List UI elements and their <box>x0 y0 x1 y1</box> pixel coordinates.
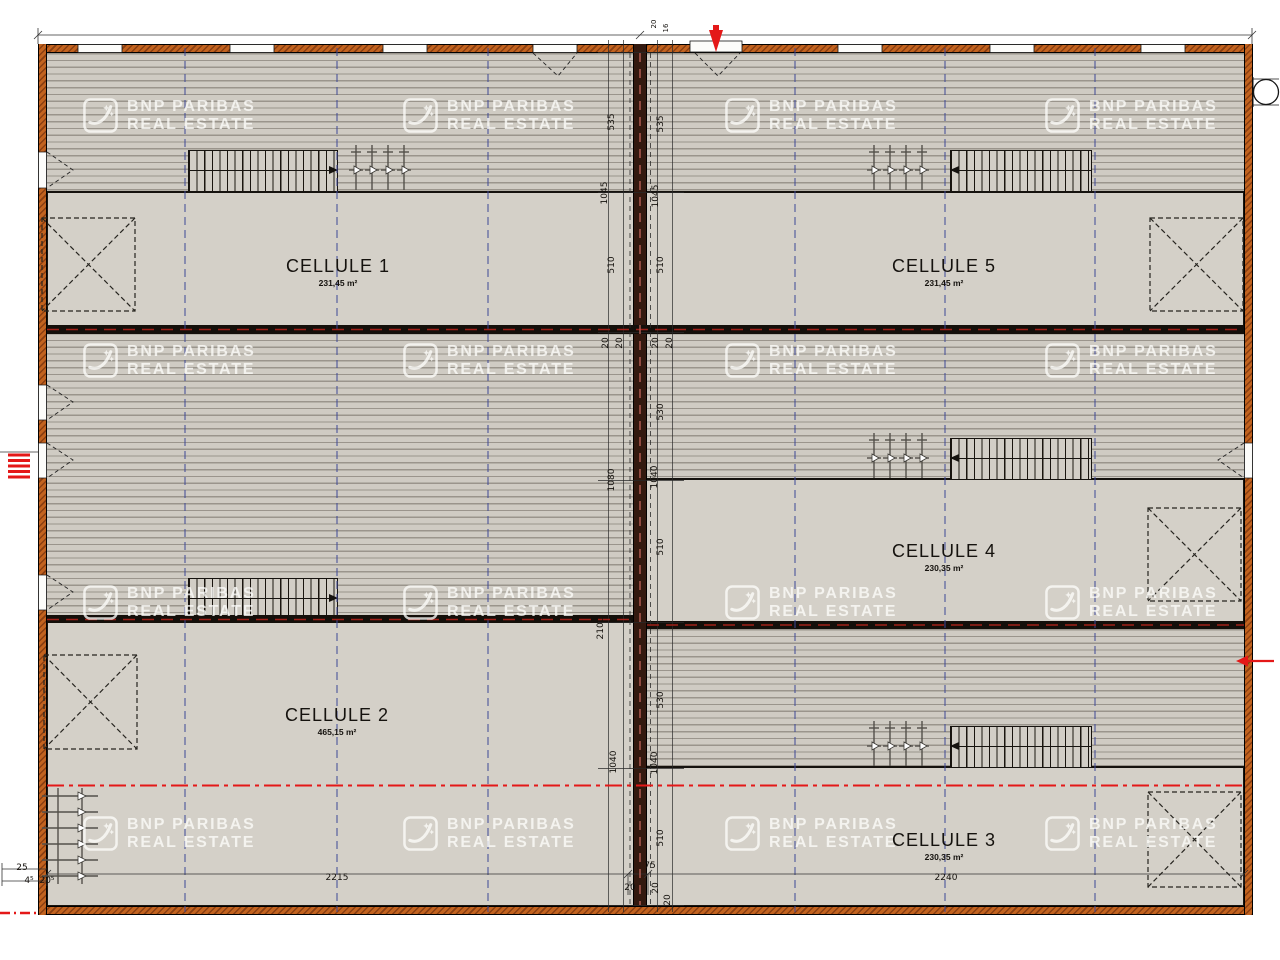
bnp-logo-icon <box>725 816 760 851</box>
dimension-text: 2215 <box>326 873 349 883</box>
firewall-lower-right <box>647 621 1244 629</box>
watermark: BNP PARIBASREAL ESTATE <box>403 98 576 133</box>
dimension-text: 4⁵ <box>24 876 33 886</box>
stair-direction-line <box>189 170 337 171</box>
watermark-line1: BNP PARIBAS <box>1089 343 1218 361</box>
room-name: CELLULE 2 <box>285 705 389 726</box>
bnp-logo-icon <box>403 98 438 133</box>
room-name: CELLULE 4 <box>892 541 996 562</box>
watermark: BNP PARIBASREAL ESTATE <box>1045 98 1218 133</box>
room-area: 465,15 m² <box>285 727 389 737</box>
room-label-cellule-4: CELLULE 4230,35 m² <box>892 541 996 573</box>
dimension-text: 535 <box>607 113 617 130</box>
room-name: CELLULE 3 <box>892 830 996 851</box>
dimension-text: 2240 <box>935 873 958 883</box>
bnp-logo-icon <box>83 585 118 620</box>
dimension-text: 1040 <box>650 466 660 489</box>
watermark: BNP PARIBASREAL ESTATE <box>403 343 576 378</box>
dimension-text: 20 <box>651 337 661 348</box>
watermark-line1: BNP PARIBAS <box>447 98 576 116</box>
dimension-text: 16 <box>662 24 670 33</box>
dimension-text: 510 <box>607 256 617 273</box>
watermark-line1: BNP PARIBAS <box>127 585 256 603</box>
watermark-line2: REAL ESTATE <box>1089 834 1218 852</box>
bnp-logo-icon <box>403 816 438 851</box>
bnp-logo-icon <box>403 585 438 620</box>
dimension-text: 20⁵ <box>39 876 54 886</box>
firewall-upper <box>47 325 1244 334</box>
watermark-line1: BNP PARIBAS <box>1089 98 1218 116</box>
stair-direction-line <box>951 458 1091 459</box>
watermark: BNP PARIBASREAL ESTATE <box>403 816 576 851</box>
dimension-text: 510 <box>656 829 666 846</box>
watermark: BNP PARIBASREAL ESTATE <box>83 343 256 378</box>
room-area: 231,45 m² <box>892 278 996 288</box>
room-area: 230,35 m² <box>892 852 996 862</box>
watermark-line2: REAL ESTATE <box>447 834 576 852</box>
bnp-logo-icon <box>1045 816 1080 851</box>
dimension-text: 20 <box>624 883 635 893</box>
dimension-text: 1045 <box>600 182 610 205</box>
room-name: CELLULE 5 <box>892 256 996 277</box>
watermark: BNP PARIBASREAL ESTATE <box>725 585 898 620</box>
staircase-cellule5 <box>950 150 1092 192</box>
bnp-logo-icon <box>83 98 118 133</box>
dimension-text: 20 <box>601 337 611 348</box>
watermark-line1: BNP PARIBAS <box>769 343 898 361</box>
exterior-wall-bottom <box>38 906 1253 915</box>
room-area: 231,45 m² <box>286 278 390 288</box>
watermark-line2: REAL ESTATE <box>769 834 898 852</box>
watermark: BNP PARIBASREAL ESTATE <box>1045 343 1218 378</box>
bnp-logo-icon <box>725 585 760 620</box>
dimension-text: 535 <box>656 115 666 132</box>
watermark-line1: BNP PARIBAS <box>447 816 576 834</box>
dimension-text: 1045 <box>651 185 661 208</box>
watermark-line1: BNP PARIBAS <box>127 98 256 116</box>
watermark-line2: REAL ESTATE <box>447 603 576 621</box>
staircase-cellule3 <box>950 726 1092 768</box>
watermark: BNP PARIBASREAL ESTATE <box>725 343 898 378</box>
dimension-text: 75 <box>644 861 655 871</box>
watermark-line2: REAL ESTATE <box>1089 603 1218 621</box>
watermark: BNP PARIBASREAL ESTATE <box>83 98 256 133</box>
watermark: BNP PARIBASREAL ESTATE <box>403 585 576 620</box>
watermark-line1: BNP PARIBAS <box>769 816 898 834</box>
watermark-line2: REAL ESTATE <box>447 116 576 134</box>
room-label-cellule-3: CELLULE 3230,35 m² <box>892 830 996 862</box>
red-hatch-marker-left <box>8 455 30 477</box>
watermark-line2: REAL ESTATE <box>769 116 898 134</box>
room-label-cellule-2: CELLULE 2465,15 m² <box>285 705 389 737</box>
dimension-text: 1080 <box>607 469 617 492</box>
mezzanine-hatch-bottom-right <box>647 629 1244 768</box>
watermark-line2: REAL ESTATE <box>1089 361 1218 379</box>
room-area: 230,35 m² <box>892 563 996 573</box>
watermark: BNP PARIBASREAL ESTATE <box>83 585 256 620</box>
dimension-text: 510 <box>656 538 666 555</box>
watermark-line1: BNP PARIBAS <box>769 585 898 603</box>
bnp-logo-icon <box>1045 585 1080 620</box>
dimension-text: 1040 <box>609 751 619 774</box>
watermark: BNP PARIBASREAL ESTATE <box>725 98 898 133</box>
stair-direction-line <box>951 746 1091 747</box>
watermark: BNP PARIBASREAL ESTATE <box>1045 816 1218 851</box>
bnp-logo-icon <box>1045 343 1080 378</box>
exterior-wall-left <box>38 44 47 915</box>
watermark-line1: BNP PARIBAS <box>1089 816 1218 834</box>
exterior-wall-right <box>1244 44 1253 915</box>
staircase-cellule1 <box>188 150 338 192</box>
bnp-logo-icon <box>725 98 760 133</box>
watermark-line1: BNP PARIBAS <box>127 343 256 361</box>
watermark: BNP PARIBASREAL ESTATE <box>725 816 898 851</box>
watermark-line2: REAL ESTATE <box>1089 116 1218 134</box>
dimension-text: 20 <box>663 894 673 905</box>
dimension-text: 530 <box>656 403 666 420</box>
watermark-line1: BNP PARIBAS <box>769 98 898 116</box>
watermark-line1: BNP PARIBAS <box>447 343 576 361</box>
dimension-text: 20 <box>615 337 625 348</box>
dimension-text: 1040 <box>650 752 660 775</box>
dimension-text: 20 <box>651 882 661 893</box>
room-name: CELLULE 1 <box>286 256 390 277</box>
stair-direction-line <box>951 170 1091 171</box>
watermark-line2: REAL ESTATE <box>127 834 256 852</box>
dimension-text: 20 <box>650 20 658 29</box>
watermark-line1: BNP PARIBAS <box>447 585 576 603</box>
watermark-line2: REAL ESTATE <box>127 603 256 621</box>
watermark-line2: REAL ESTATE <box>447 361 576 379</box>
watermark-line2: REAL ESTATE <box>769 603 898 621</box>
bnp-logo-icon <box>1045 98 1080 133</box>
dimension-text: 25 <box>16 863 27 873</box>
staircase-cellule4 <box>950 438 1092 480</box>
bnp-logo-icon <box>403 343 438 378</box>
watermark-line2: REAL ESTATE <box>127 361 256 379</box>
room-label-cellule-1: CELLULE 1231,45 m² <box>286 256 390 288</box>
dimension-text: 530 <box>656 691 666 708</box>
watermark-line2: REAL ESTATE <box>127 116 256 134</box>
dimension-text: 510 <box>656 256 666 273</box>
central-spine-wall <box>633 44 647 906</box>
watermark: BNP PARIBASREAL ESTATE <box>83 816 256 851</box>
dimension-text: 20 <box>665 337 675 348</box>
watermark-line1: BNP PARIBAS <box>1089 585 1218 603</box>
watermark: BNP PARIBASREAL ESTATE <box>1045 585 1218 620</box>
bnp-logo-icon <box>83 343 118 378</box>
dimension-text: 2100 <box>596 617 606 640</box>
watermark-line1: BNP PARIBAS <box>127 816 256 834</box>
bnp-logo-icon <box>725 343 760 378</box>
bnp-logo-icon <box>83 816 118 851</box>
watermark-line2: REAL ESTATE <box>769 361 898 379</box>
downpipe-circle <box>1253 77 1279 107</box>
room-label-cellule-5: CELLULE 5231,45 m² <box>892 256 996 288</box>
